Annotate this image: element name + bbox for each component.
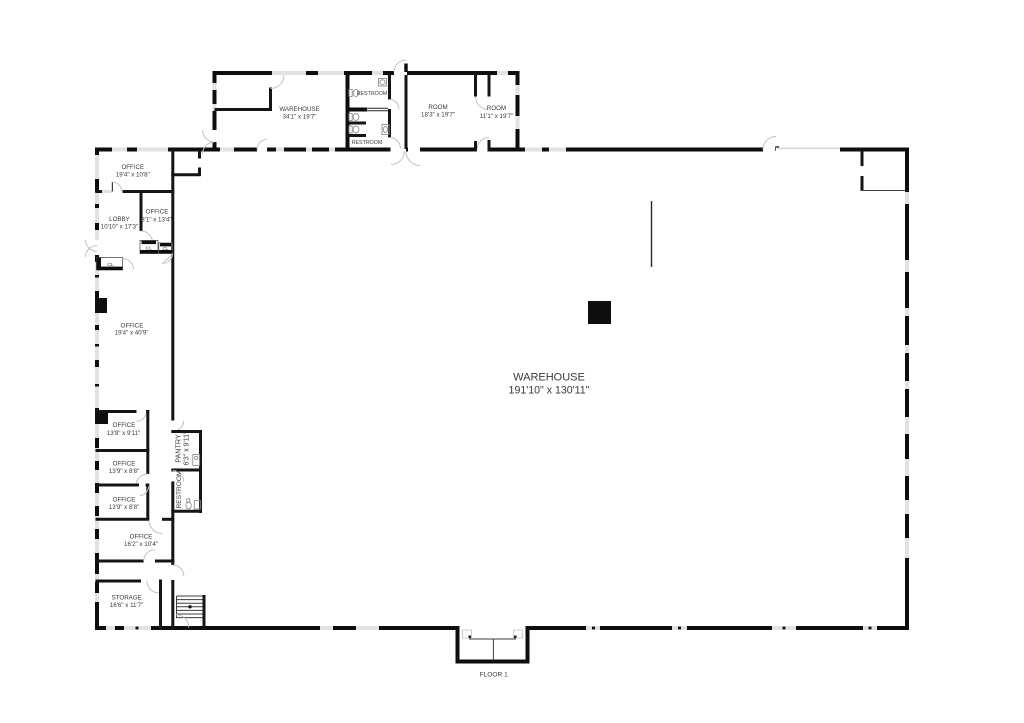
svg-text:FLOOR 1: FLOOR 1 <box>480 672 509 679</box>
svg-text:OFFICE: OFFICE <box>113 422 136 429</box>
svg-text:8'1" x 13'4": 8'1" x 13'4" <box>141 216 172 223</box>
svg-text:OFFICE: OFFICE <box>130 534 153 541</box>
svg-text:STORAGE: STORAGE <box>112 594 142 601</box>
svg-text:CL: CL <box>162 246 169 252</box>
svg-text:OFFICE: OFFICE <box>121 164 144 171</box>
svg-text:OFFICE: OFFICE <box>146 208 169 215</box>
svg-text:10'10" x 17'3": 10'10" x 17'3" <box>101 224 138 231</box>
svg-text:OFFICE: OFFICE <box>113 496 136 503</box>
svg-text:6'3" x 9'11": 6'3" x 9'11" <box>183 431 190 465</box>
svg-text:ROOM: ROOM <box>428 104 447 111</box>
svg-text:19'4" x 10'8": 19'4" x 10'8" <box>116 171 150 178</box>
svg-text:OFFICE: OFFICE <box>113 461 136 468</box>
svg-text:191'10" x 130'11": 191'10" x 130'11" <box>509 385 590 397</box>
svg-text:CL: CL <box>107 262 114 268</box>
svg-text:LOBBY: LOBBY <box>109 216 130 223</box>
svg-text:11'1" x 19'7": 11'1" x 19'7" <box>480 113 513 120</box>
svg-text:WAREHOUSE: WAREHOUSE <box>279 106 319 113</box>
svg-text:13'9" x 9'11": 13'9" x 9'11" <box>107 430 140 437</box>
svg-text:34'1" x 19'7": 34'1" x 19'7" <box>283 114 317 121</box>
svg-text:18'3" x 19'7": 18'3" x 19'7" <box>421 112 455 119</box>
svg-text:ROOM: ROOM <box>487 105 506 112</box>
svg-text:WAREHOUSE: WAREHOUSE <box>513 372 585 384</box>
svg-text:16'6" x 11'7": 16'6" x 11'7" <box>110 602 143 609</box>
svg-text:CL: CL <box>146 245 153 251</box>
svg-text:RESTROOM: RESTROOM <box>357 91 388 97</box>
svg-text:OFFICE: OFFICE <box>121 322 144 329</box>
svg-text:16'2" x 10'4": 16'2" x 10'4" <box>124 541 158 548</box>
svg-text:13'9" x 8'8": 13'9" x 8'8" <box>109 504 140 511</box>
svg-text:13'9" x 8'8": 13'9" x 8'8" <box>109 468 140 475</box>
svg-text:PANTRY: PANTRY <box>174 434 183 463</box>
svg-text:RESTROOM: RESTROOM <box>176 470 183 508</box>
svg-text:RESTROOM: RESTROOM <box>352 140 383 146</box>
svg-text:19'4" x 40'9": 19'4" x 40'9" <box>115 329 149 336</box>
